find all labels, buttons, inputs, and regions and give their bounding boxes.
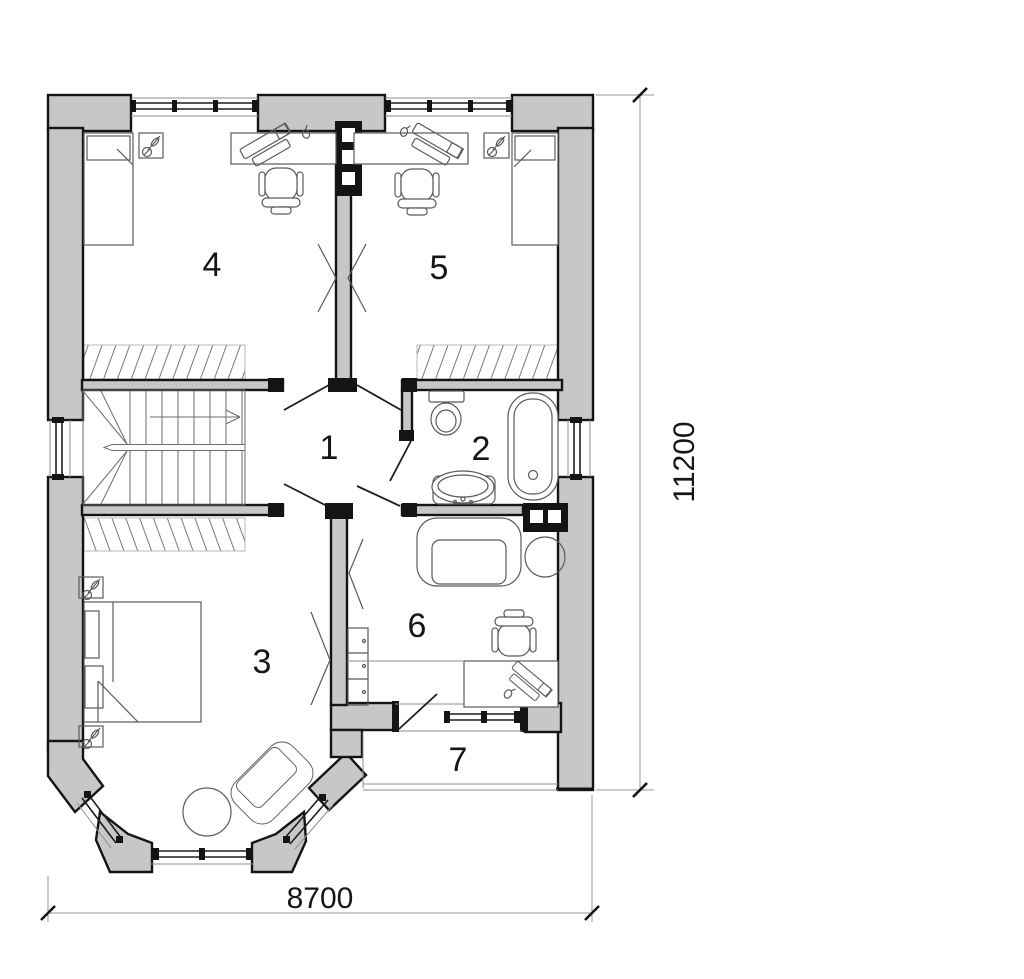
room3-furniture (79, 577, 330, 836)
round-table-room3 (183, 788, 231, 836)
bed-room3 (84, 602, 201, 722)
sloped-ceiling-hatch-left-top (84, 345, 245, 379)
armchair-room6 (417, 518, 521, 586)
dimension-height (596, 88, 654, 797)
bathtub (508, 393, 558, 500)
sink (432, 471, 495, 504)
room-label-bedroom-right: 5 (430, 249, 449, 287)
dimension-width-label: 8700 (287, 882, 354, 915)
ventilation-duct-bathroom (523, 503, 568, 532)
floor-plan-drawing: 1 2 3 4 5 6 7 8700 11200 (0, 0, 1024, 974)
office-chair-room4 (259, 168, 303, 214)
door-room4-leaf (284, 385, 329, 410)
floor-plan-page: 1 2 3 4 5 6 7 8700 11200 (0, 0, 1024, 974)
bed-room4 (84, 133, 133, 245)
wardrobe-mark-room4 (318, 244, 336, 312)
window-right-bathroom (568, 417, 590, 480)
nightstand-lamp-room4 (139, 133, 163, 158)
window-top-left (131, 98, 258, 116)
door-room3-leaf (284, 484, 327, 506)
sloped-ceiling-hatch-left-bottom (84, 518, 245, 551)
office-chair-room5 (395, 169, 439, 215)
wardrobe-mark-room6 (349, 539, 363, 609)
room-label-hall: 1 (320, 429, 339, 467)
door-room6-leaf (357, 486, 400, 506)
office-chair-room6 (492, 610, 536, 656)
shelf-room6 (348, 628, 368, 705)
window-left-stairs (50, 417, 70, 480)
room-label-bedroom-left: 4 (203, 246, 222, 284)
nightstand-lamp-room5 (484, 133, 509, 158)
bathroom-fixtures (429, 391, 558, 504)
staircase (83, 390, 245, 505)
dimension-height-label: 11200 (668, 421, 701, 502)
bay-window (48, 701, 399, 872)
room6-furniture (347, 518, 565, 707)
doors (284, 385, 437, 729)
window-top-right (385, 98, 512, 116)
room-label-bedroom-main: 3 (253, 643, 272, 681)
toilet (429, 391, 464, 435)
desk-room6 (464, 661, 558, 707)
door-balcony-leaf (399, 694, 437, 729)
room5-furniture (348, 123, 558, 312)
room-label-balcony: 7 (449, 741, 468, 779)
door-bathroom-leaf (390, 441, 411, 481)
door-room5-leaf (357, 385, 401, 410)
bed-room5 (512, 133, 558, 245)
room-label-bathroom: 2 (472, 430, 491, 468)
wardrobe-mark-room3 (311, 612, 330, 705)
room-label-study: 6 (408, 607, 427, 645)
sloped-ceiling-hatch-bathroom (417, 345, 562, 379)
